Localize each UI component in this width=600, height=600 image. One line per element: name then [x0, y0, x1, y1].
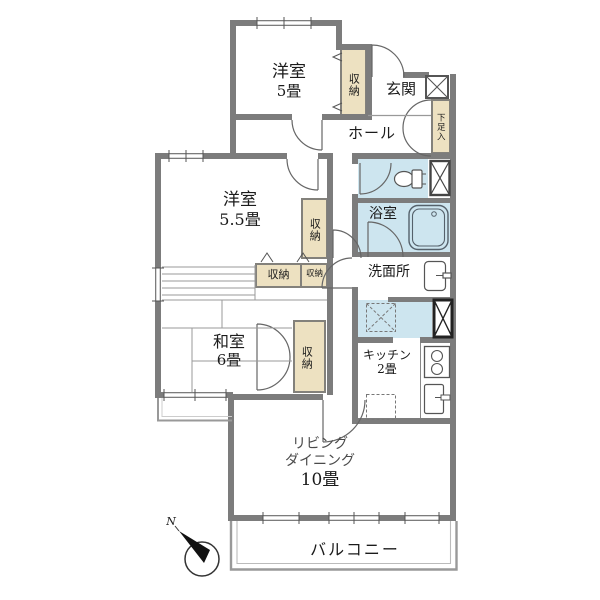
- room-label-balcony: バルコニー: [288, 540, 422, 559]
- closet-label: 収納: [308, 205, 321, 255]
- sliding-door-lines: [162, 265, 255, 300]
- room-size: 2畳: [355, 362, 419, 376]
- stove-icon: [425, 347, 450, 378]
- room-name-line1: リビング: [250, 436, 390, 453]
- room-name: 和室: [186, 332, 272, 351]
- corridor-door-swing: [333, 230, 361, 258]
- room-name-line2: ダイニング: [250, 453, 390, 470]
- closet-label: 収納: [347, 56, 360, 114]
- room-size: 6畳: [186, 351, 272, 369]
- room-label-kitchen: キッチン 2畳: [355, 348, 419, 377]
- closet-label: 収納: [256, 268, 301, 281]
- shoe-cabinet-label: 下足入: [435, 103, 445, 151]
- washbasin-icon: [425, 262, 452, 291]
- fridge-space-icon: [367, 395, 396, 420]
- bedroom55-door-swing: [287, 159, 318, 190]
- room-label-bedroom55: 洋室 5.5畳: [180, 190, 300, 230]
- room-name: 洋室: [243, 62, 335, 82]
- room-label-washitsu: 和室 6畳: [186, 332, 272, 369]
- compass-north-label: N: [164, 515, 178, 528]
- room-label-bath: 浴室: [360, 206, 406, 223]
- floor-plan: 洋室 5畳 洋室 5.5畳 和室 6畳 玄関 ホール 浴室 洗面所 キッチン 2…: [0, 0, 600, 600]
- toilet-icon: [395, 170, 427, 188]
- kitchen-sink-icon: [425, 385, 451, 414]
- room-size: 10畳: [250, 470, 390, 490]
- bedroom5-door-swing: [292, 120, 322, 150]
- room-label-genkan: 玄関: [372, 80, 430, 98]
- room-size: 5畳: [243, 82, 335, 100]
- closet-label: 収納: [301, 269, 328, 279]
- front-door-swing: [372, 45, 404, 77]
- room-label-living: リビング ダイニング 10畳: [250, 436, 390, 490]
- closet-label: 収納: [300, 330, 313, 386]
- compass-icon: [175, 526, 219, 576]
- bath-door-swing: [368, 222, 403, 257]
- room-label-senmenjo: 洗面所: [355, 264, 423, 281]
- room-label-bedroom5: 洋室 5畳: [243, 62, 335, 100]
- bathtub-icon: [409, 206, 448, 250]
- room-label-hall: ホール: [336, 124, 408, 142]
- exterior-ledge-line: [158, 398, 232, 421]
- toilet-door-swing: [360, 163, 391, 194]
- washer-space-cross: [367, 304, 396, 332]
- room-name: キッチン: [355, 348, 419, 362]
- room-size: 5.5畳: [180, 210, 300, 229]
- exterior-ledge-line-inner: [162, 398, 232, 417]
- room-name: 洋室: [180, 190, 300, 210]
